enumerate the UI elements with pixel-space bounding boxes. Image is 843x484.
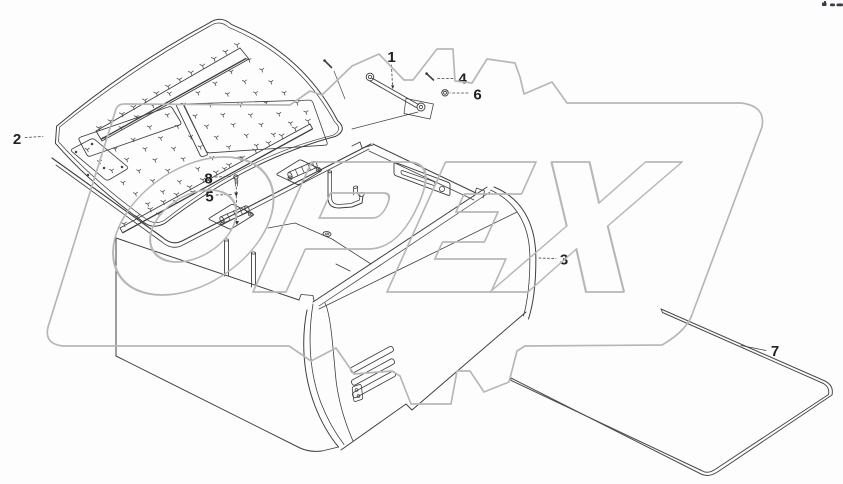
svg-text:6: 6	[473, 87, 481, 104]
svg-text:2: 2	[13, 131, 21, 148]
svg-text:8: 8	[204, 171, 212, 188]
svg-text:4: 4	[458, 71, 467, 88]
svg-text:7: 7	[771, 343, 779, 360]
svg-text:5: 5	[205, 189, 213, 206]
